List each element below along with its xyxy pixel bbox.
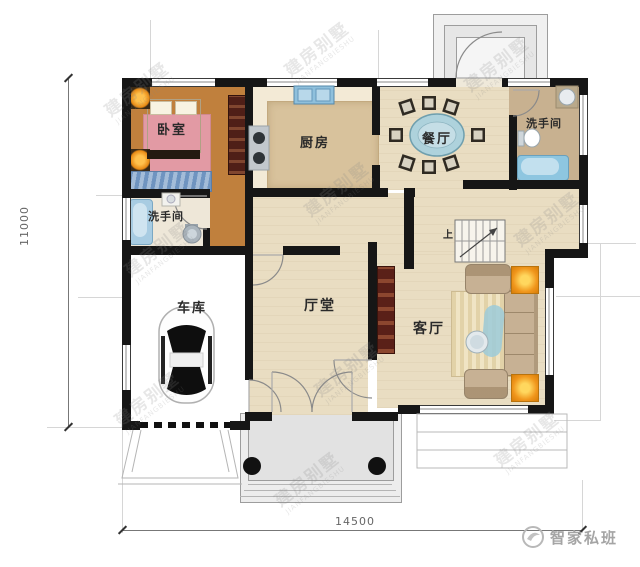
coffee-table [466,304,505,358]
label-bath-left: 洗手间 [131,208,201,224]
door-arc-bath-right [513,90,539,116]
label-garage: 车库 [162,297,222,316]
door-arc-living [334,360,372,398]
terrace-steps [417,414,567,468]
stairs [455,220,505,262]
door-arc-front-right [312,372,352,412]
dimension-width: 14500 [325,515,385,528]
plan-linework [0,0,640,567]
label-bedroom: 卧室 [142,119,202,138]
label-living: 客厅 [399,318,459,338]
dimension-height: 11000 [18,206,31,246]
driveway [118,430,242,484]
car-icon [159,307,214,403]
label-hall: 厅堂 [290,295,350,315]
door-arc-front-left [272,372,312,412]
logo-icon [520,524,546,550]
label-kitchen: 厨房 [285,132,345,151]
label-bath-right: 洗手间 [509,115,579,131]
dimension-line-bottom [122,530,582,531]
floor-plan: 卧室 厨房 餐厅 洗手间 洗手间 车库 厅堂 客厅 上 11000 14500 … [0,0,640,567]
label-dining: 餐厅 [407,128,467,147]
logo: 智家私班 [520,524,618,550]
door-arc-hall-north [253,255,283,285]
logo-text: 智家私班 [550,527,618,548]
door-arc-garage [249,380,281,412]
door-arc-rear-entry [456,32,502,78]
label-stairs-up: 上 [440,226,456,241]
dimension-line-left [68,78,69,427]
sink-icon [559,89,575,105]
kitchen-fixtures [249,86,334,170]
toilet-icon [518,131,524,146]
